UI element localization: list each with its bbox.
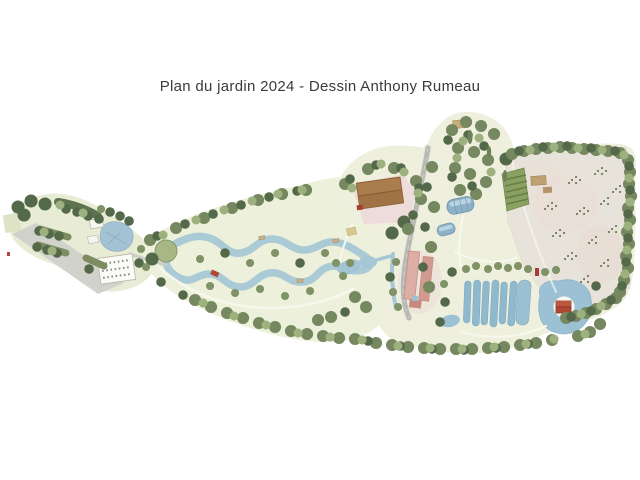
storage-shed [531,175,547,185]
wide-basin [515,280,531,326]
red-marker [7,252,10,256]
red-tower [535,268,539,276]
storage-shed-small [543,187,552,194]
field-pink-tint [576,225,624,285]
island-pavilion [556,301,571,313]
garden-map-illustration [0,0,640,480]
yellow-shed [346,227,356,236]
page: Plan du jardin 2024 - Dessin Anthony Rum… [0,0,640,480]
